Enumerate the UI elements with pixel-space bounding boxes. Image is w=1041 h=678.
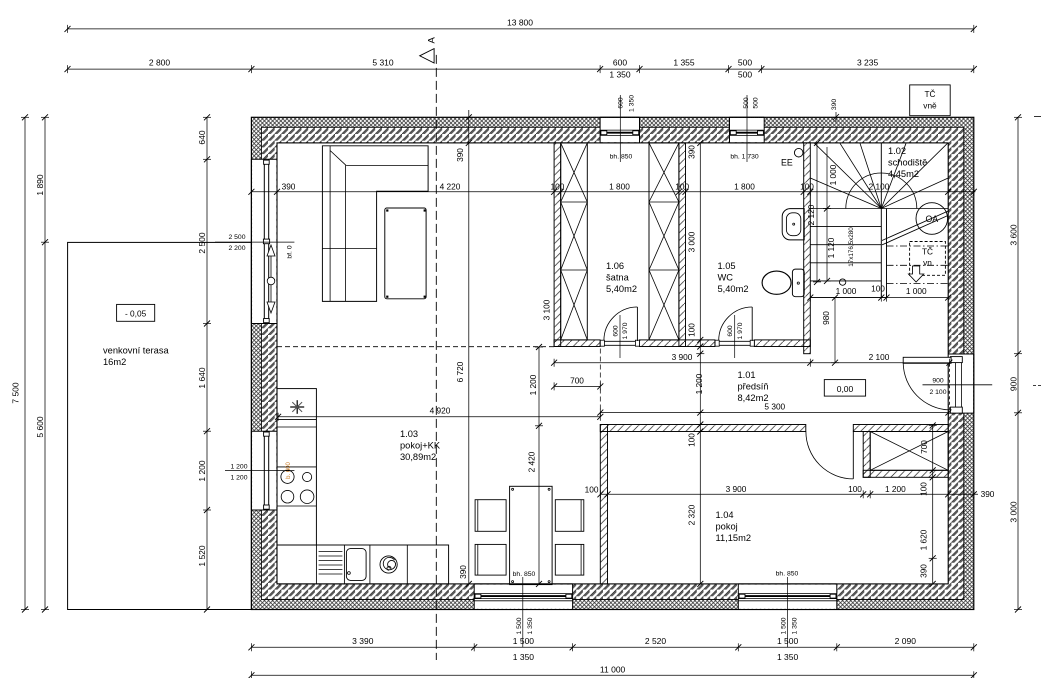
svg-text:100: 100 [675,181,689,191]
svg-text:7 500: 7 500 [11,382,21,404]
svg-text:2 120: 2 120 [806,204,816,225]
svg-text:500: 500 [743,97,750,109]
svg-text:4 220: 4 220 [440,181,461,191]
svg-text:1 970: 1 970 [737,322,744,339]
svg-text:100: 100 [800,181,814,191]
svg-text:bf. 0: bf. 0 [287,245,294,258]
svg-text:bh. 850: bh. 850 [610,154,633,161]
svg-text:TČ: TČ [922,247,933,257]
svg-text:500: 500 [738,70,752,80]
svg-text:5,40m2: 5,40m2 [718,284,749,294]
svg-text:3 600: 3 600 [1009,224,1019,246]
svg-text:390: 390 [458,565,468,579]
svg-text:4 920: 4 920 [430,406,451,416]
svg-text:pokoj+KK: pokoj+KK [400,441,441,451]
svg-text:5 300: 5 300 [764,401,785,411]
svg-text:5 310: 5 310 [372,58,394,68]
svg-text:vně: vně [923,101,937,111]
svg-text:1 200: 1 200 [528,374,538,395]
svg-text:100: 100 [848,484,862,494]
svg-text:1 500: 1 500 [516,617,523,634]
svg-text:100: 100 [687,433,697,447]
svg-text:390: 390 [455,148,465,162]
svg-text:1 000: 1 000 [836,286,857,296]
svg-text:5 600: 5 600 [35,416,45,438]
svg-text:1 200: 1 200 [230,474,247,481]
svg-text:1 350: 1 350 [777,652,799,662]
svg-text:2 100: 2 100 [869,181,890,191]
svg-text:OA: OA [925,214,938,224]
svg-text:EE: EE [781,158,793,168]
svg-text:2 090: 2 090 [895,636,917,646]
svg-text:600: 600 [618,97,625,109]
svg-text:390: 390 [981,489,995,499]
svg-text:1 500: 1 500 [781,617,788,634]
svg-text:WC: WC [718,273,734,283]
svg-text:11 000: 11 000 [600,664,626,674]
svg-text:900: 900 [932,377,944,384]
svg-text:pokoj: pokoj [716,522,738,532]
svg-text:390: 390 [687,145,697,159]
svg-text:1.05: 1.05 [718,261,736,271]
svg-text:1 890: 1 890 [35,174,45,196]
svg-text:640: 640 [197,130,207,144]
svg-text:2 320: 2 320 [687,504,697,525]
svg-text:1.04: 1.04 [716,510,734,520]
svg-text:2 420: 2 420 [527,451,537,472]
svg-text:2 500: 2 500 [197,232,207,254]
svg-text:700: 700 [570,375,584,385]
svg-text:1 640: 1 640 [197,367,207,389]
svg-text:100: 100 [871,284,885,294]
svg-text:100: 100 [550,181,564,191]
svg-text:100: 100 [585,484,599,494]
svg-text:17x176,5x280: 17x176,5x280 [848,227,855,267]
svg-text:1.01: 1.01 [738,370,756,380]
svg-text:3 235: 3 235 [857,58,879,68]
svg-text:1.06: 1.06 [606,261,624,271]
svg-text:3 100: 3 100 [542,299,552,320]
svg-text:2 100: 2 100 [929,389,946,396]
svg-text:1 970: 1 970 [622,322,629,339]
svg-text:390: 390 [282,181,296,191]
svg-text:600: 600 [613,325,620,337]
svg-text:1 500: 1 500 [513,636,535,646]
svg-text:šatna: šatna [606,273,630,283]
svg-text:1 350: 1 350 [609,70,631,80]
svg-text:3 900: 3 900 [672,352,693,362]
svg-text:3 000: 3 000 [687,231,697,252]
svg-text:600: 600 [727,325,734,337]
svg-text:venkovní terasa: venkovní terasa [103,346,169,356]
svg-text:1 800: 1 800 [734,181,755,191]
svg-text:- 0,05: - 0,05 [125,308,147,318]
svg-text:2 800: 2 800 [149,58,171,68]
svg-text:600: 600 [613,58,627,68]
svg-text:3 900: 3 900 [726,484,747,494]
svg-text:2 520: 2 520 [645,636,667,646]
svg-text:500: 500 [738,58,752,68]
svg-text:4,45m2: 4,45m2 [888,169,919,179]
svg-text:5,40m2: 5,40m2 [606,284,637,294]
svg-text:bh. 850: bh. 850 [776,571,799,578]
svg-text:vn: vn [923,258,932,268]
svg-text:6 720: 6 720 [455,361,465,382]
svg-text:1 500: 1 500 [777,636,799,646]
svg-text:1 355: 1 355 [673,58,695,68]
svg-text:100: 100 [918,482,928,496]
svg-text:1 200: 1 200 [694,373,704,394]
svg-text:2 500: 2 500 [228,234,245,241]
svg-text:3 390: 3 390 [352,636,374,646]
svg-text:2 200: 2 200 [228,245,245,252]
svg-text:bh. 1 730: bh. 1 730 [730,154,759,161]
svg-text:3 000: 3 000 [1009,501,1019,523]
svg-text:0,00: 0,00 [837,384,854,394]
svg-text:1 350: 1 350 [792,617,799,634]
svg-text:schodiště: schodiště [888,158,927,168]
svg-text:13 800: 13 800 [507,18,533,28]
svg-text:900: 900 [1009,377,1019,391]
svg-text:1 350: 1 350 [527,617,534,634]
svg-text:30,89m2: 30,89m2 [400,452,436,462]
svg-text:1 000: 1 000 [828,164,838,185]
svg-text:1.03: 1.03 [400,429,418,439]
svg-text:1 200: 1 200 [885,484,906,494]
svg-text:předsíň: předsíň [738,382,769,392]
svg-text:2 100: 2 100 [869,352,890,362]
svg-text:1 120: 1 120 [826,237,836,258]
svg-text:A: A [426,36,437,43]
svg-text:1 800: 1 800 [609,181,630,191]
svg-text:1.02: 1.02 [888,146,906,156]
svg-text:1 350: 1 350 [513,652,535,662]
svg-text:16m2: 16m2 [103,357,126,367]
svg-text:500: 500 [753,97,760,109]
svg-text:1 350: 1 350 [629,95,636,112]
svg-text:390: 390 [831,99,838,111]
svg-text:1 200: 1 200 [230,463,247,470]
svg-text:390: 390 [918,564,928,578]
svg-text:11,15m2: 11,15m2 [716,533,752,543]
svg-text:bh. 850: bh. 850 [513,571,536,578]
svg-text:1 200: 1 200 [197,460,207,482]
svg-text:1 000: 1 000 [906,286,927,296]
svg-text:1 520: 1 520 [197,545,207,567]
svg-text:1 620: 1 620 [918,529,928,550]
svg-text:700: 700 [919,440,929,454]
svg-text:TČ: TČ [924,89,935,99]
svg-text:980: 980 [821,311,831,325]
svg-text:b. 600: b. 600 [286,461,292,478]
svg-text:100: 100 [687,323,697,337]
